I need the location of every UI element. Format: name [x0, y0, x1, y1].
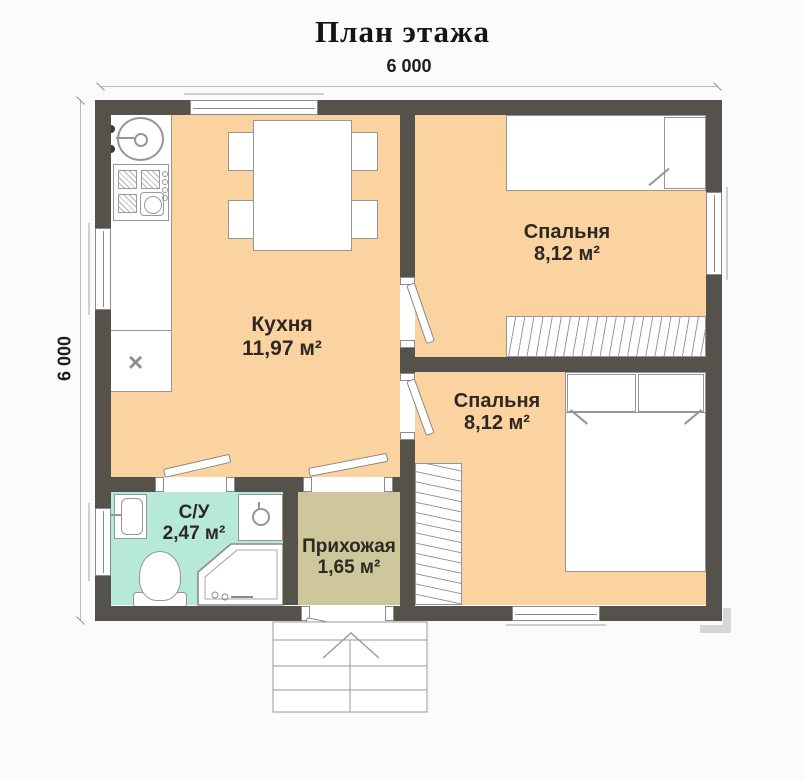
- burner-icon: [141, 170, 160, 189]
- chair-icon: [351, 200, 378, 239]
- room-area: 11,97 м²: [182, 337, 382, 361]
- washer-door-icon: [252, 508, 270, 526]
- door-jamb: [155, 477, 164, 492]
- room-name: Кухня: [182, 313, 382, 337]
- chair-icon: [228, 200, 255, 239]
- kitchen-label: Кухня 11,97 м²: [182, 313, 382, 360]
- chair-icon: [228, 132, 255, 171]
- wardrobe: [415, 463, 462, 605]
- room-name: С/У: [134, 502, 254, 523]
- door-jamb: [385, 606, 394, 621]
- burner-icon: [118, 170, 137, 189]
- corner-shower-icon: [197, 543, 284, 606]
- wardrobe: [506, 316, 706, 357]
- sink-drain-icon: [134, 133, 148, 147]
- bed-pillow: [664, 117, 706, 189]
- stove-knob-icon: [162, 195, 168, 201]
- window-bathroom-left: [95, 508, 111, 576]
- dining-table: [253, 120, 352, 251]
- bathroom-label: С/У 2,47 м²: [134, 502, 254, 545]
- room-area: 1,65 м²: [296, 557, 402, 578]
- burner-icon: [118, 194, 137, 213]
- dimension-top-label: 6 000: [329, 56, 489, 77]
- entrance-stairs: [272, 621, 428, 713]
- door-jamb: [400, 340, 415, 348]
- stove-knob-icon: [162, 179, 168, 185]
- chair-icon: [351, 132, 378, 171]
- wall-kitchen-bedroom: [400, 115, 415, 284]
- floor-plan: План этажа 6 000 6 000 ×: [0, 0, 805, 781]
- window-sill: [88, 503, 90, 581]
- bedroom-bottom-label: Спальня 8,12 м²: [417, 390, 577, 435]
- window-kitchen-top: [190, 100, 318, 115]
- washer-valve-icon: [258, 502, 260, 510]
- wall-hallway-bedroom: [400, 440, 415, 606]
- door-jamb: [226, 477, 235, 492]
- room-name: Спальня: [417, 390, 577, 412]
- doorway-hallway: [311, 477, 386, 492]
- window-sill: [506, 624, 606, 626]
- wall-right: [706, 100, 722, 621]
- window-bedroom-right: [706, 192, 722, 275]
- door-jamb: [400, 432, 415, 440]
- cabinet-cross-mark: ×: [128, 349, 143, 375]
- hallway-label: Прихожая 1,65 м²: [296, 536, 402, 579]
- window-sill: [88, 223, 90, 315]
- bed-pillow: [567, 374, 636, 412]
- window-sill: [726, 187, 728, 280]
- room-area: 8,12 м²: [467, 243, 667, 265]
- dimension-top-line: [100, 86, 718, 87]
- doorway-entry: [309, 606, 386, 621]
- room-area: 8,12 м²: [417, 412, 577, 434]
- window-sill: [184, 93, 324, 95]
- stove-knob-icon: [162, 171, 168, 177]
- corner-shadow: [700, 625, 731, 633]
- toilet-bowl: [139, 551, 181, 601]
- room-area: 2,47 м²: [134, 523, 254, 544]
- room-name: Прихожая: [296, 536, 402, 557]
- room-name: Спальня: [467, 221, 667, 243]
- pot-icon: [144, 196, 162, 214]
- plan-title: План этажа: [0, 14, 805, 50]
- window-kitchen-left: [95, 228, 111, 310]
- wall-between-bedrooms: [400, 357, 706, 372]
- blanket-edge-line: [566, 412, 705, 413]
- stove-knob-icon: [162, 187, 168, 193]
- doorway-bathroom: [163, 477, 227, 492]
- door-jamb: [303, 477, 312, 492]
- door-jamb: [384, 477, 393, 492]
- wall-bottom: [95, 606, 722, 621]
- dimension-left-line: [80, 100, 81, 620]
- bed-pillow: [638, 374, 704, 412]
- sink-faucet-icon: [110, 514, 122, 516]
- dimension-left-label: 6 000: [55, 319, 76, 399]
- wall-bathroom-top: [228, 477, 305, 492]
- window-bedroom-bottom: [512, 606, 600, 621]
- bedroom-top-label: Спальня 8,12 м²: [467, 221, 667, 266]
